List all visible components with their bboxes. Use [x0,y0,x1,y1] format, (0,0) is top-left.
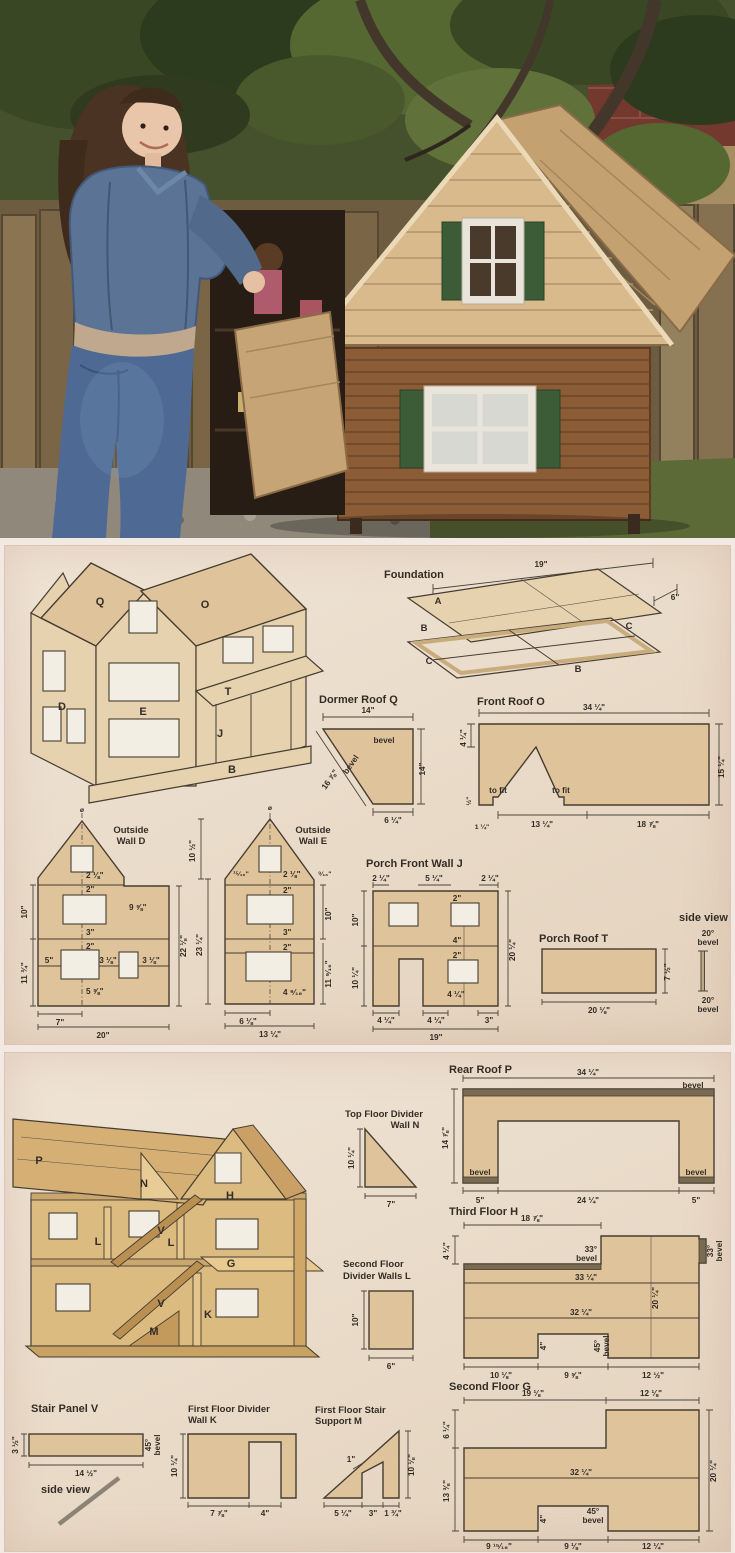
dim-label: 14 ⅞" [441,1127,450,1149]
diagram-dormer-roof-q: Dormer Roof Q 14" bevel bevel 16 ⅞" 14" … [316,694,427,825]
dim-label: 10 ¼" [347,1147,356,1169]
part-letter: G [227,1258,236,1270]
part-letter: T [225,686,232,698]
dim-label: 10" [351,913,360,926]
porch-roof-shape-2d [542,949,656,993]
dim-label: 6" [671,593,680,602]
dim-label: 13 ⅜" [442,1480,451,1502]
dim-label: 9 ⅛" [564,1542,582,1551]
dim-label: 34 ¼" [577,1068,599,1077]
diagram-stair-support-m: First Floor Stair Support M 1" 10 ⅛" 5 ¼… [315,1405,416,1518]
dim-label: 16 ⅞" [320,768,340,791]
dim-label: 10" [324,907,333,920]
part-letter: Q [96,596,105,608]
dim-label: 6 ⅛" [239,1017,257,1026]
diagram-title: Rear Roof P [449,1064,512,1076]
side-view-strip [701,951,705,991]
part-letter: L [95,1236,102,1248]
diagram-side-view-1: side view 20° bevel 20° bevel [679,912,728,1014]
part-letter: B [575,664,582,675]
dim-label: 10 ½" [188,840,197,862]
part-letter: H [226,1190,234,1202]
photo-illustration [0,0,735,538]
divider-l-iso [104,1207,111,1259]
dim-label: 19 ⅛" [522,1389,544,1398]
part-letter: M [149,1326,158,1338]
dim-label: ⁹⁄₁₆" [318,871,331,878]
dim-label: 3 ⅛" [142,956,160,965]
diagram-title: side view [41,1484,90,1496]
dim-label: 7" [56,1018,65,1027]
part-letter: V [157,1225,165,1237]
diagram-divider-wall-n: Top Floor Divider Wall N 10 ¼" 7" [345,1109,423,1209]
diagram-title: Support M [315,1416,362,1427]
diagram-title: Outside [295,825,330,836]
centerline-symbol: ø [80,807,85,814]
open-front-panel [235,312,348,498]
dim-label: 32 ¼" [570,1308,592,1317]
dim-label: 5 ¼" [425,874,443,883]
attic-window [215,1153,241,1183]
bevel-label: 33° [706,1245,715,1257]
bevel-label: 20° [702,996,714,1005]
dim-label: 2 ¼" [481,874,499,883]
dim-label: 9 ⅝" [564,1371,582,1380]
dim-label: 6 ¼" [442,1421,451,1439]
diagram-foundation: Foundation 19" 6" A B C C B [384,558,679,678]
bevel-label: bevel [153,1435,162,1456]
diagram-title: Stair Panel V [31,1403,99,1415]
dim-label: 4" [453,936,462,945]
plan-sheet-1: Q O D E T J B Foundation 19" 6" A B C C … [4,545,731,1045]
dim-label: 7" [387,1200,396,1209]
diagram-title: Porch Front Wall J [366,858,463,870]
part-letter: E [139,706,146,718]
bevel-label: 20° [702,929,714,938]
dim-label: 13 ¼" [531,820,553,829]
part-letter: A [435,596,442,607]
dim-label: 5" [476,1196,485,1205]
bevel-label: 45° [587,1507,599,1516]
diagram-side-view-2: side view [41,1478,119,1524]
bevel-label: bevel [470,1168,491,1177]
dim-label: 4 ⁹⁄₁₆" [283,988,306,997]
diagram-porch-roof-t: Porch Roof T 20 ⅛" 7 ½" [539,933,672,1015]
dim-label: 10 ⅛" [490,1371,512,1380]
part-letter: B [228,764,236,776]
diagram-title: Third Floor H [449,1206,518,1218]
dim-label: 4 ¼" [377,1016,395,1025]
bevel-label: 45° [593,1340,602,1352]
diagram-front-roof-o: Front Roof O 34 ¼" 4 ¼" 15 ¼" to fit to … [459,696,726,831]
dim-label: 10" [20,905,29,918]
to-fit-label: to fit [552,786,570,795]
dim-label: 3" [485,1016,494,1025]
centerline-symbol: ø [268,805,273,812]
lower-right-shutter [536,390,560,468]
plan-sheet-1-drawing: Q O D E T J B Foundation 19" 6" A B C C … [5,546,732,1046]
bevel-label: bevel [583,1516,604,1525]
diagram-title: Second Floor [343,1259,404,1270]
bevel-label: 33° [585,1245,597,1254]
upper-left-shutter [442,222,462,300]
dim-label: 9 ¹⁵⁄₁₆" [486,1542,512,1551]
dim-label: 20 ¼" [651,1287,660,1309]
bevel-label: bevel [576,1254,597,1263]
dim-label: 4" [539,1515,548,1524]
dim-label: 9 ⅝" [129,903,147,912]
rear-roof-shape [463,1089,714,1183]
divider-k-shape [188,1434,296,1498]
dim-label: 1 ¼" [475,823,490,831]
dim-label: 7 ⅞" [210,1509,228,1518]
part-letter: C [626,621,633,632]
dormer-roof-shape [323,729,413,804]
dim-label: 5" [45,956,54,965]
bevel-label: bevel [602,1336,611,1357]
divider-n-shape [365,1129,416,1187]
part-letter: N [140,1178,148,1190]
dim-label: 3" [283,928,292,937]
diagram-third-floor-h: Third Floor H 33° bevel 18 ⅞" 4 ¼" 33° b… [442,1206,724,1380]
diagram-porch-front-wall-j: Porch Front Wall J 2 ¼" 5 ¼" 2 ¼" 10" 10… [351,858,517,1042]
dim-label: 19" [535,560,548,569]
dim-label: 11 ¾" [20,962,29,984]
dim-label: 7 ½" [663,963,672,981]
girl-neck [145,153,161,167]
bevel-label: bevel [715,1241,724,1262]
diagram-rear-roof-p: Rear Roof P 34 ¼" bevel 14 ⅞" bevel beve… [441,1064,714,1205]
girl-hand [243,271,265,293]
divider-l-shape [369,1291,413,1349]
dim-label: ¹⁵⁄₁₆" [233,871,249,878]
dim-label: 4 ¼" [459,729,468,747]
dim-label: 20 ⅛" [588,1006,610,1015]
dim-label: 4 ¼" [447,990,465,999]
dim-label: 6 ¼" [384,816,402,825]
divider-k-iso [193,1273,201,1346]
dim-label: 2" [453,951,462,960]
dim-label: 14" [362,706,375,715]
dim-label: 10" [351,1313,360,1326]
diagram-title: Wall D [117,836,146,847]
upper-right-shutter [524,222,544,300]
dim-label: 20 ¼" [709,1460,718,1482]
bevel-label: bevel [698,938,719,947]
diagram-title: Porch Roof T [539,933,608,945]
dim-label: 1" [347,1455,356,1464]
bevel-label: 45° [144,1439,153,1451]
part-letter: L [168,1237,175,1249]
dim-label: 3 ⅛" [99,956,117,965]
jeans-fade [80,362,164,478]
bevel-label: bevel [698,1005,719,1014]
dim-label: 10 ¼" [170,1455,179,1477]
dim-label: 12 ½" [642,1371,664,1380]
dim-label: 34 ¼" [583,703,605,712]
plan-sheet-2-drawing: P N H L V L G V K M Rear Roof P 34 ¼" be… [5,1053,732,1553]
dim-label: 5" [692,1196,701,1205]
diagram-title: First Floor Divider [188,1404,270,1415]
dim-label: 2" [283,943,292,952]
part-letter: B [421,623,428,634]
dim-label: 4" [539,1342,548,1351]
dim-label: 4" [261,1509,270,1518]
bevel-label: bevel [374,736,395,745]
dim-label: 15 ¼" [717,756,726,778]
diagram-title: First Floor Stair [315,1405,386,1416]
diagram-title: side view [679,912,728,924]
front-roof-shape [479,724,709,805]
house-isometric-2: P N H L V L G V K M [13,1119,323,1357]
dim-label: 22 ⅛" [179,935,188,957]
dim-label: 4 ¼" [427,1016,445,1025]
diagram-outside-wall-e: Outside Wall E ø 10 ½" ¹⁵⁄₁₆" 2 ⅛" ⁹⁄₁₆"… [188,805,333,1039]
diagram-title: Foundation [384,569,444,581]
house-isometric-1: Q O D E T J B [31,554,323,803]
dim-label: 19" [430,1033,443,1042]
bevel-label: bevel [683,1081,704,1090]
part-letter: C [426,656,433,667]
right-wall-edge [294,1199,306,1346]
dim-label: 6" [387,1362,396,1371]
dim-label: ½" [465,797,473,806]
stair-panel-shape [29,1434,143,1456]
dim-label: 2 ⅛" [86,871,104,880]
base-slab [26,1346,319,1357]
diagram-stair-panel-v: Stair Panel V 3 ½" 14 ½" 45° bevel [11,1403,162,1478]
dim-label: 12 ¼" [642,1542,664,1551]
dim-label: 5 ⅝" [86,987,104,996]
dim-label: 11 ⁹⁄₁₆" [324,960,333,987]
part-letter: J [217,728,223,740]
dim-label: 12 ⅛" [640,1389,662,1398]
dim-label: 23 ¼" [195,934,204,956]
lower-left-shutter [400,390,424,468]
dim-label: 14 ½" [75,1469,97,1478]
photo-girl-with-playhouse [0,0,735,538]
dim-label: 10 ⅛" [407,1454,416,1476]
dim-label: 24 ¼" [577,1196,599,1205]
bevel-label: bevel [686,1168,707,1177]
dim-label: 32 ¼" [570,1468,592,1477]
diagram-title: Outside [113,825,148,836]
dim-label: 10 ¼" [351,967,360,989]
dim-label: 18 ⅞" [637,820,659,829]
diagram-divider-wall-k: First Floor Divider Wall K 10 ¼" 7 ⅞" 4" [170,1404,296,1518]
part-letter: D [58,701,66,713]
dim-label: 2" [86,885,95,894]
diagram-title: Divider Walls L [343,1271,411,1282]
dim-label: 3" [369,1509,378,1518]
dim-label: 2" [86,942,95,951]
dim-label: 3 ½" [11,1436,20,1454]
dim-label: 13 ¼" [259,1030,281,1039]
part-letter: O [201,599,210,611]
dim-label: 4 ¼" [442,1242,451,1260]
dim-label: 33 ¼" [575,1273,597,1282]
dim-label: 18 ⅞" [521,1214,543,1223]
diagram-second-floor-g: Second Floor G 19 ⅛" 12 ⅛" 6 ¼" 13 ⅜" 32… [442,1381,718,1551]
plan-sheet-2: P N H L V L G V K M Rear Roof P 34 ¼" be… [4,1052,731,1552]
part-letter: P [35,1155,42,1167]
diagram-title: Front Roof O [477,696,545,708]
to-fit-label: to fit [489,786,507,795]
diagram-title: Wall K [188,1415,217,1426]
dim-label: 2 ⅛" [283,870,301,879]
part-letter: K [204,1309,212,1321]
diagram-title: Top Floor Divider [345,1109,423,1120]
dim-label: 1 ¾" [384,1509,402,1518]
dim-label: 3" [86,928,95,937]
dim-label: 14" [418,762,427,775]
part-letter: V [157,1298,165,1310]
diagram-divider-walls-l: Second Floor Divider Walls L 10" 6" [343,1259,413,1371]
house-shadow [270,514,690,538]
dim-label: 20" [97,1031,110,1040]
dim-label: 20 ¼" [508,939,517,961]
dim-label: 2" [283,886,292,895]
dim-label: 2 ¼" [372,874,390,883]
diagram-title: Dormer Roof Q [319,694,398,706]
stair-support-shape [324,1431,399,1498]
dim-label: 5 ¼" [334,1509,352,1518]
dim-label: 2" [453,894,462,903]
diagram-outside-wall-d: Outside Wall D ø 2 ⅛" 2" 9 ⅝" 3" 2" 5" 3… [20,807,188,1040]
diagram-title: Wall E [299,836,327,847]
diagram-title: Wall N [391,1120,420,1131]
diagram-title: Second Floor G [449,1381,531,1393]
